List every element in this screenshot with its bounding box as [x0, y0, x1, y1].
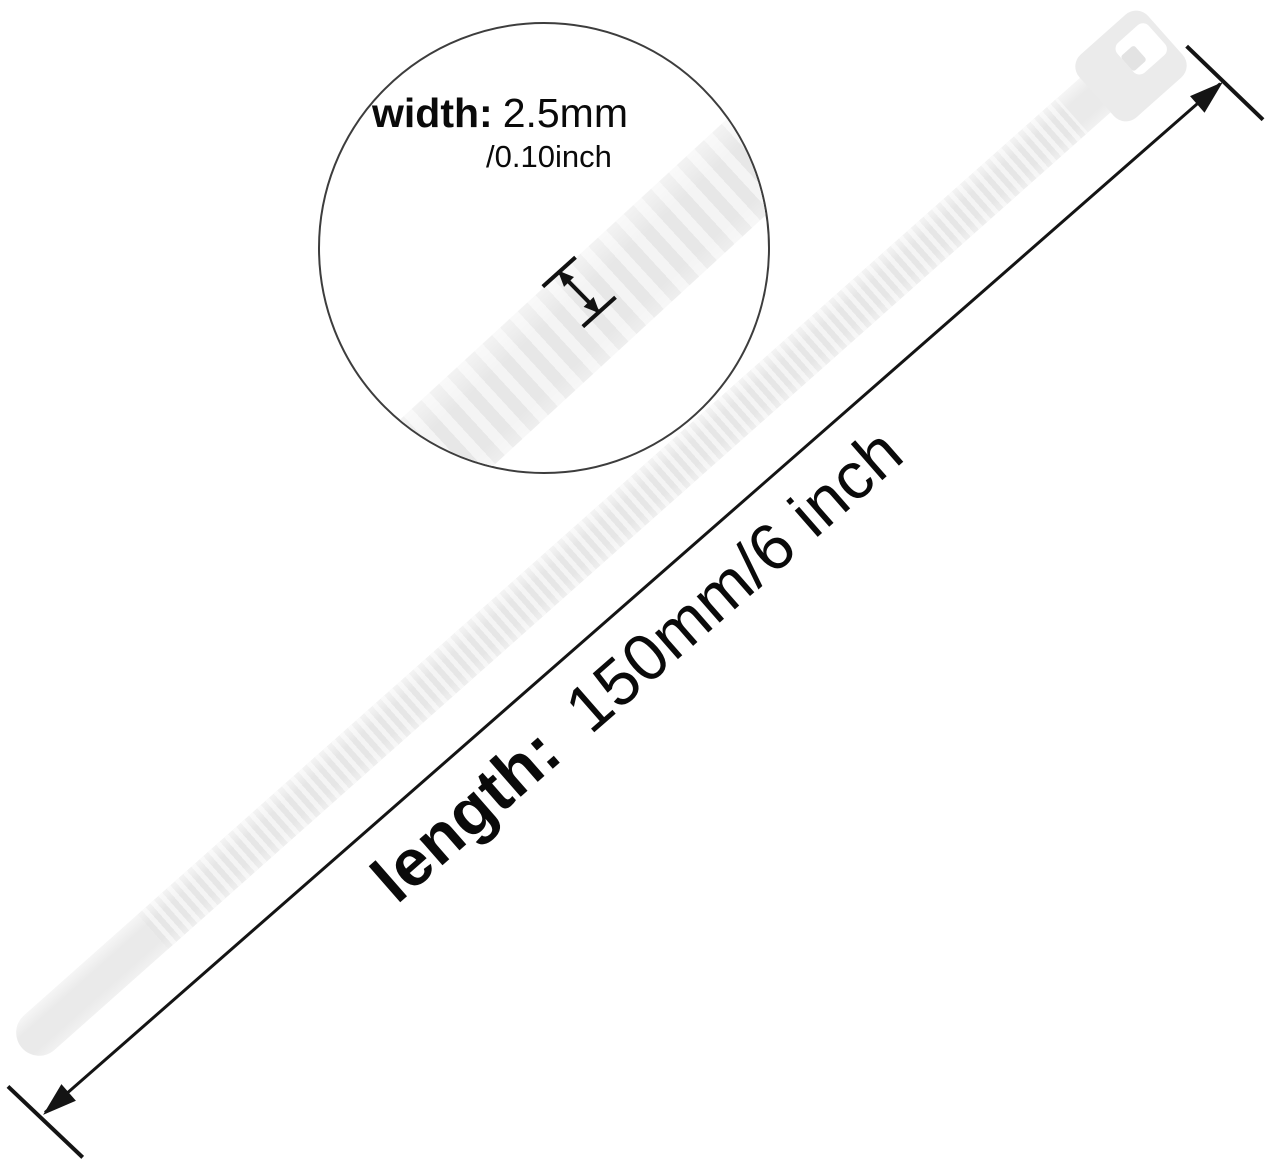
- width-value-inch: /0.10inch: [486, 139, 612, 175]
- length-extension-tick-top: [1186, 45, 1265, 121]
- cable-tie-head-slot: [1112, 20, 1170, 78]
- width-label-group: width:2.5mm: [372, 90, 628, 137]
- product-dimension-diagram: width:2.5mm /0.10inch length:150mm/6 inc…: [0, 0, 1270, 1165]
- width-value-mm: 2.5mm: [503, 90, 628, 136]
- width-label: width:: [372, 90, 493, 136]
